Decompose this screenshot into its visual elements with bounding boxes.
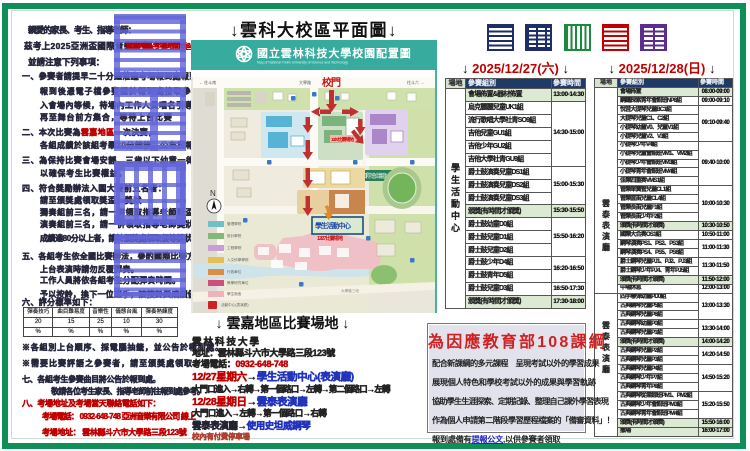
svg-text:Map of National Yunlin Univers: Map of National Yunlin University of Sci…: [257, 61, 348, 65]
svg-text:← 往斗南: ← 往斗南: [199, 79, 216, 85]
svg-text:設計學院: 設計學院: [227, 233, 242, 238]
svg-text:大學路: 大學路: [299, 79, 311, 85]
svg-text:工程學院: 工程學院: [227, 245, 242, 250]
svg-text:活動中心(表演廳): 活動中心(表演廳): [221, 302, 249, 307]
svg-text:12/27比賽場地: 12/27比賽場地: [317, 235, 343, 242]
svg-text:N: N: [210, 189, 216, 198]
svg-text:12/27比賽場地: 12/27比賽場地: [331, 136, 354, 143]
svg-text:往斗六 →: 往斗六 →: [407, 79, 424, 85]
svg-text:大學路三段: 大學路三段: [341, 288, 359, 293]
svg-text:國立雲林科技大學校園配置圖: 國立雲林科技大學校園配置圖: [257, 46, 412, 60]
svg-text:學生活動中心: 學生活動中心: [315, 221, 351, 230]
svg-text:人文科學學院: 人文科學學院: [227, 257, 249, 262]
svg-text:校門: 校門: [322, 76, 341, 89]
svg-text:管理學院: 管理學院: [227, 221, 242, 226]
svg-text:學生宿舍: 學生宿舍: [227, 291, 242, 296]
svg-text:行政單位: 行政單位: [227, 269, 242, 274]
svg-text:教學研究單位: 教學研究單位: [227, 280, 249, 285]
